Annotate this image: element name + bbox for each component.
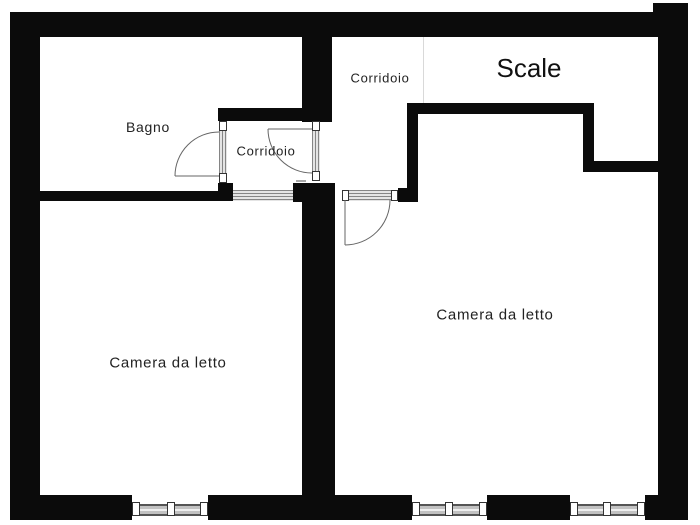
room-label-corridoio-top: Corridoio [350,72,409,85]
wall-stairwell-step [583,161,660,172]
wall-bagno-bottom [40,191,233,201]
door-swing-bedroom [345,200,390,245]
door-jamb-bedroom-right [391,190,398,201]
wall-corridor-top [218,108,302,121]
wall-central-lower [302,183,335,495]
room-label-camera-da-letto-left: Camera da letto [109,356,226,371]
door-jamb-bedroom-left [342,190,349,201]
door-jamb-bagno-bottom [219,173,227,183]
room-label-camera-da-letto-right: Camera da letto [436,308,553,323]
tiny-dimension-mark [296,180,306,182]
wall-central-lower-ext [293,183,302,202]
wall-stairwell-top [407,103,593,114]
wall-bedroom-door-block [398,188,410,202]
corridor-scale-divider-line [423,37,424,103]
door-jamb-bagno-top [219,121,227,131]
door-frame-corridor [312,130,320,172]
threshold-bedroom-door [348,190,392,201]
wall-bottom-segment-1 [10,495,132,520]
window-mullion [167,502,175,516]
room-label-corridoio-small: Corridoio [236,145,295,158]
window-jamb [132,502,140,516]
door-swing-bagno [175,132,219,176]
window-mullion [445,502,453,516]
door-jamb-corridor-bottom [312,171,320,181]
window-jamb [412,502,420,516]
window-jamb [479,502,487,516]
wall-bottom-segment-3 [487,495,570,520]
room-label-bagno: Bagno [126,120,170,134]
wall-top [10,12,688,37]
passage-corridor-bottom [233,190,293,201]
room-label-scale: Scale [496,55,561,81]
window-mullion [603,502,611,516]
wall-left [10,12,40,520]
window-jamb [200,502,208,516]
wall-right [658,12,688,520]
window-jamb [570,502,578,516]
window-jamb [637,502,645,516]
wall-central-upper [302,30,332,122]
wall-bagno-door-foot [218,183,233,192]
door-frame-bagno [219,130,227,174]
door-jamb-corridor-top [312,121,320,131]
wall-bottom-segment-2 [208,495,412,520]
wall-bottom-segment-4 [645,495,688,520]
floor-plan: Bagno Corridoio Corridoio Scale Camera d… [0,0,700,525]
